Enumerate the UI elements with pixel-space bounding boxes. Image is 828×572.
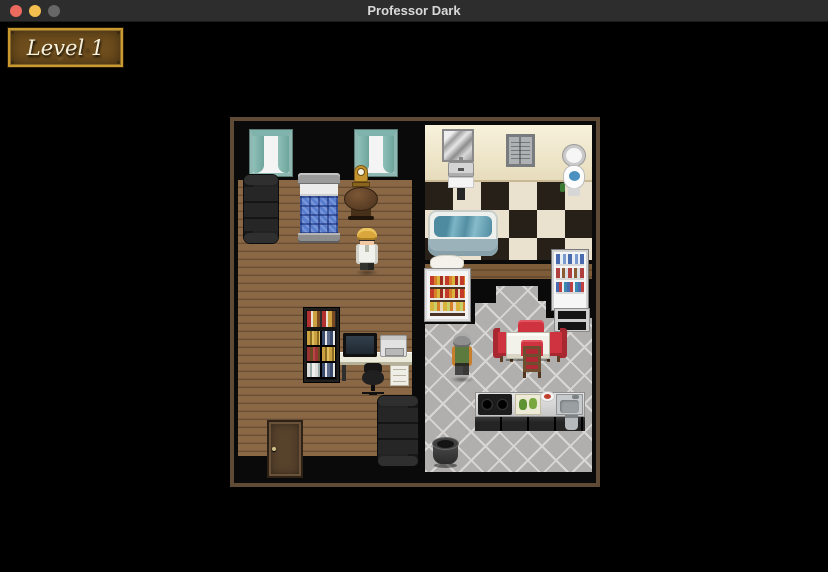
wooden-door[interactable] — [267, 420, 303, 478]
red-chair — [519, 338, 545, 378]
mantel-clock — [352, 165, 370, 191]
dish-cabinet — [552, 250, 588, 310]
office-chair — [360, 363, 386, 397]
level-badge: Level 1 — [8, 28, 123, 67]
printer — [380, 335, 407, 357]
stove — [478, 394, 512, 415]
leather-couch — [378, 396, 418, 466]
towel — [565, 415, 578, 430]
titlebar[interactable]: Professor Dark — [0, 0, 828, 22]
level-label: Level 1 — [27, 36, 104, 60]
computer-monitor — [343, 333, 377, 357]
bathtub — [428, 210, 498, 256]
food-plate — [540, 391, 555, 402]
cutting-board — [515, 394, 541, 415]
bed — [298, 173, 340, 243]
cooking-pot — [432, 437, 459, 468]
display-fridge — [425, 269, 470, 321]
desk-leg — [342, 365, 346, 381]
app-window: Professor Dark Level 1 — [0, 0, 828, 572]
game-map[interactable] — [230, 117, 600, 487]
toilet — [560, 145, 588, 203]
leather-couch — [244, 175, 278, 243]
professor-character[interactable] — [352, 228, 382, 276]
wall-sink — [446, 157, 476, 201]
curtained-window — [250, 130, 292, 176]
bookshelf — [303, 307, 340, 383]
old-man-character[interactable] — [447, 333, 477, 383]
shuttered-window — [506, 134, 535, 167]
counter-sink — [556, 394, 583, 415]
window-title: Professor Dark — [0, 0, 828, 22]
desk-drawers — [390, 365, 409, 386]
